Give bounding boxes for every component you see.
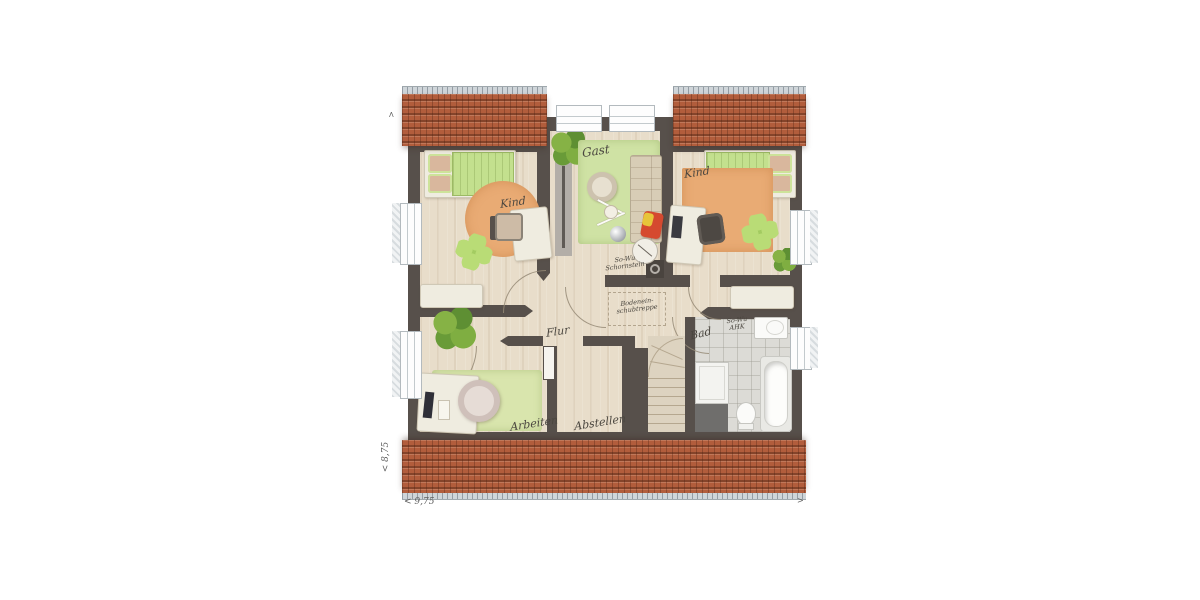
chair-kind-left xyxy=(495,213,523,241)
chimney-flue xyxy=(650,264,660,274)
roof-top-right xyxy=(673,94,806,146)
window-sill-right-1 xyxy=(810,210,818,263)
window-right-2 xyxy=(790,327,812,370)
chair-arbeiten xyxy=(458,380,500,422)
window-right-1 xyxy=(790,210,812,265)
shower xyxy=(695,362,729,404)
stair-straight-run xyxy=(648,378,685,432)
roof-bottom xyxy=(402,440,806,493)
gutter-bottom xyxy=(402,493,806,500)
window-left-1 xyxy=(400,203,422,265)
window-sill-left-1 xyxy=(392,203,400,263)
dimension-bottom: < 9,75 xyxy=(404,497,434,507)
gutter-top-left xyxy=(402,86,547,94)
bed-left-pillow-2 xyxy=(428,174,452,193)
window-sill-right-2 xyxy=(810,327,818,368)
bathtub-basin xyxy=(764,361,788,427)
window-dormer-2 xyxy=(609,105,655,132)
sink-basin xyxy=(766,320,784,335)
tub-chair-gast xyxy=(587,172,617,202)
floor-plan-canvas: Kind Gast Kind Flur Bad Arbeiten Abstell… xyxy=(0,0,1200,600)
wardrobe-gast-groove xyxy=(562,166,565,248)
dimension-marker-right: > xyxy=(797,496,804,505)
laptop-kind-right xyxy=(671,216,683,239)
plant-flur xyxy=(432,308,476,350)
bathroom-dark-floor xyxy=(695,404,728,432)
stair-spine-wall xyxy=(635,348,648,432)
sideboard-hall-right xyxy=(730,286,794,309)
wall-flur-south-a xyxy=(500,336,543,346)
window-sill-left-2 xyxy=(392,331,400,397)
window-left-2 xyxy=(400,331,422,399)
bed-left-pillow-1 xyxy=(428,154,452,173)
toilet-tank xyxy=(738,423,754,430)
dimension-left: < 8,75 xyxy=(381,437,391,477)
keyboard-arbeiten xyxy=(438,400,450,420)
gutter-top-right xyxy=(673,86,806,94)
pouf-kind-right xyxy=(739,211,782,254)
chair-kind-right xyxy=(696,212,726,245)
door-leaf-abstellen xyxy=(543,346,555,380)
silver-ball xyxy=(610,226,626,242)
window-dormer-1 xyxy=(556,105,602,132)
rocking-chair-seat xyxy=(604,205,618,219)
sideboard-kind-left xyxy=(420,284,483,308)
roof-top-left xyxy=(402,94,547,146)
dimension-marker-top: > xyxy=(387,111,396,118)
